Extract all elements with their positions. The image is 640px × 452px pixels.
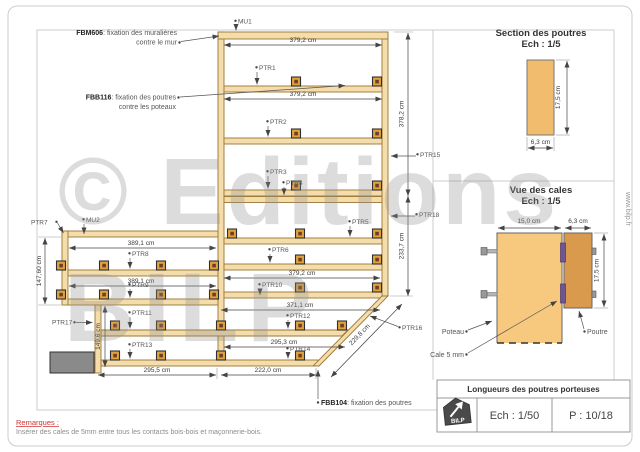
title-block: Longueurs des poutres porteuses Ech : 1/… [437, 380, 630, 432]
note-fbb104: FBB104: fixation des poutres [321, 400, 412, 407]
note-fbb116: FBB116: fixation des poutres [86, 95, 177, 102]
label-poteau: Poteau [442, 329, 464, 336]
dim-top-a: 379,2 cm [290, 37, 317, 44]
remarks-heading: Remarques : [16, 418, 59, 427]
section-title: Section des poutres [496, 28, 587, 39]
note-fbb116-line2: contre les poteaux [119, 104, 177, 111]
title-block-title: Longueurs des poutres porteuses [467, 385, 600, 394]
dim-right-upper: 378,2 cm [399, 101, 406, 128]
watermark-line1: © Editions [58, 139, 559, 245]
dim-222: 222,0 cm [255, 367, 282, 374]
watermark-line2: BILP [64, 253, 321, 362]
title-block-page: P : 10/18 [569, 410, 613, 422]
tag-ptr16: PTR16 [402, 325, 423, 332]
section-height: 17,5 cm [555, 86, 562, 109]
tag-ptr1: PTR1 [259, 65, 276, 72]
dim-295b: 295,5 cm [144, 367, 171, 374]
plan-page: 379,2 cm 379,2 cm 378,2 cm 233,7 cm 389,… [0, 0, 640, 452]
cale-upper [561, 243, 566, 262]
cale-lower [561, 284, 566, 303]
tag-ptr2: PTR2 [270, 119, 287, 126]
tag-mu1: MU1 [238, 19, 252, 26]
section-scale: Ech : 1/5 [521, 39, 561, 50]
poutre-height: 17,5 cm [594, 259, 601, 282]
plan-drawing: 379,2 cm 379,2 cm 378,2 cm 233,7 cm 389,… [0, 0, 640, 452]
dim-top-b: 379,2 cm [290, 91, 317, 98]
remarks: Remarques : Insérer des cales de 5mm ent… [16, 418, 262, 436]
tag-ptr7: PTR7 [31, 220, 48, 227]
site-url: www.bilp.fr [624, 191, 631, 227]
remarks-body: Insérer des cales de 5mm entre tous les … [16, 429, 262, 436]
poteau-shape [497, 233, 562, 343]
poutre-shape [564, 233, 592, 308]
beam-cross-section [527, 60, 554, 135]
note-fbm606: FBM606: fixation des muralières [76, 30, 177, 37]
poutre-width: 6,3 cm [568, 218, 588, 225]
dim-left-height: 147,60 cm [36, 256, 43, 286]
label-poutre: Poutre [587, 329, 608, 336]
label-cale: Cale 5 mm [430, 352, 464, 359]
title-block-scale: Ech : 1/50 [490, 410, 540, 422]
note-fbm606-line2: contre le mur [136, 40, 178, 47]
section-panel: Section des poutres Ech : 1/5 17,5 cm 6,… [496, 28, 587, 151]
